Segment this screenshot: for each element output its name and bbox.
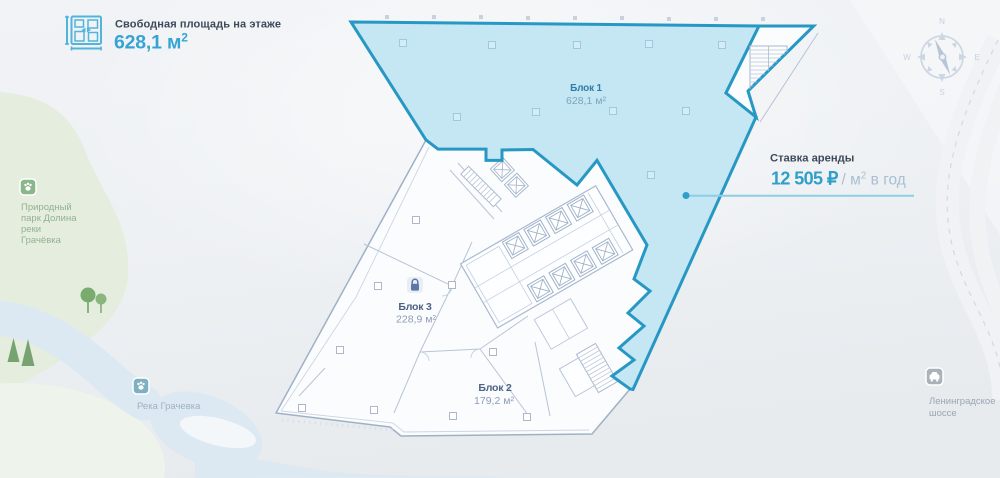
svg-text:12 505 ₽: 12 505 ₽ xyxy=(771,169,839,189)
svg-text:N: N xyxy=(939,17,945,26)
svg-text:/ м2 в год: / м2 в год xyxy=(842,171,906,189)
svg-text:Свободная площадь на этаже: Свободная площадь на этаже xyxy=(115,19,281,31)
svg-text:Блок 3: Блок 3 xyxy=(398,301,432,313)
svg-text:S: S xyxy=(939,88,944,97)
svg-text:Ставка аренды: Ставка аренды xyxy=(770,153,854,165)
svg-text:179,2 м²: 179,2 м² xyxy=(474,395,514,407)
svg-text:Река Грачевка: Река Грачевка xyxy=(137,401,201,412)
svg-text:628,1 м2: 628,1 м2 xyxy=(114,31,188,54)
svg-text:Природный: Природный xyxy=(21,202,72,213)
svg-text:Грачёвка: Грачёвка xyxy=(21,235,62,246)
svg-text:Ленинградское: Ленинградское xyxy=(929,396,995,407)
svg-text:W: W xyxy=(903,53,911,62)
svg-text:реки: реки xyxy=(21,224,41,235)
svg-text:628,1 м²: 628,1 м² xyxy=(566,95,606,107)
svg-text:E: E xyxy=(974,53,979,62)
svg-text:Блок 1: Блок 1 xyxy=(570,83,602,94)
svg-text:Блок 2: Блок 2 xyxy=(478,382,512,394)
svg-text:228,9 м²: 228,9 м² xyxy=(396,314,436,326)
svg-text:шоссе: шоссе xyxy=(929,408,957,419)
svg-text:парк Долина: парк Долина xyxy=(21,213,77,224)
